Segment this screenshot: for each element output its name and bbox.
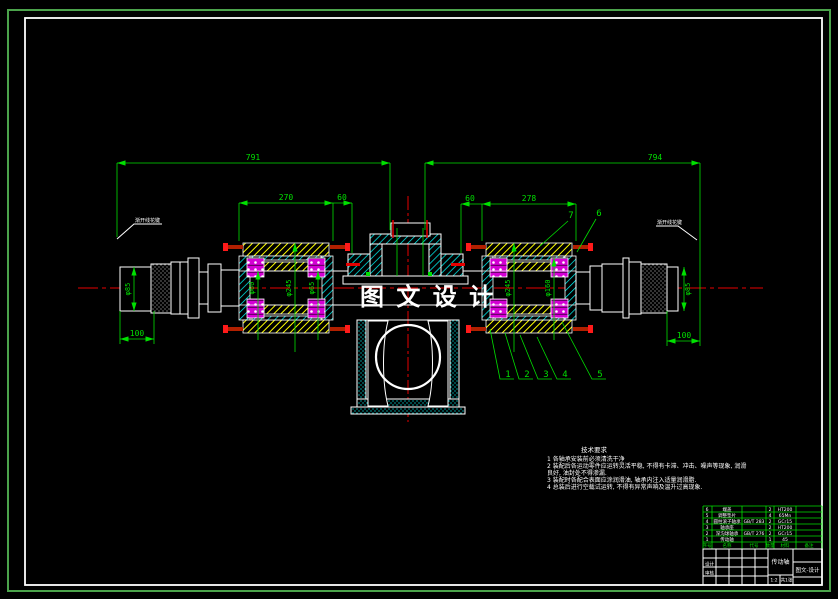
bom-cell: GCr15 (778, 531, 792, 537)
balloon-3: 3 (543, 370, 548, 380)
left-housing-top-band (243, 243, 329, 256)
title-checked-label: 审核 (705, 570, 714, 577)
dim-right-dia-big: φ245 (504, 280, 512, 297)
dim-right-housing: 278 (522, 194, 537, 203)
bom-cell: HT200 (778, 507, 793, 513)
bom-header-cell: 数量 (766, 542, 775, 549)
right-shaft-spline (641, 264, 667, 313)
notes-line-2: 2 装配后各运动零件应运转灵活平稳, 不得有卡滞、冲击、噪声等现象, 润滑 (547, 462, 746, 470)
bom-cell: 4 (769, 513, 772, 519)
right-bearing-tr (551, 258, 568, 277)
bom-cell: 2 (706, 531, 709, 537)
right-shaft (576, 258, 678, 318)
left-shaft-ring1 (171, 262, 180, 314)
bom-cell: GB/T 276 (744, 531, 765, 537)
left-shaft-spline (151, 264, 171, 313)
right-shaft-neck1 (576, 272, 590, 304)
title-company: 图文-设计 (796, 566, 820, 574)
bom-cell: GCr15 (778, 519, 792, 525)
right-shaft-flange (623, 258, 629, 318)
dim-left-end-len: 100 (130, 329, 145, 338)
bom-table: 6 端盖 2 HT200 5 调整垫片 4 65Mn 4 圆柱滚子轴承 GB/T… (703, 506, 823, 549)
cad-drawing-sheet: 791 794 270 60 60 278 100 100 φ85 φ85 φ6… (0, 0, 838, 599)
title-sheet: 共1张 (781, 577, 793, 584)
dim-right-end-len: 100 (677, 331, 692, 340)
bom-cell: 圆柱滚子轴承 (714, 518, 741, 525)
left-mid-band-bottom (264, 305, 308, 314)
bom-header: 序号 名称 代号 数量 材料 备注 (703, 542, 814, 549)
right-housing-top-band (486, 243, 572, 256)
title-part-name: 传动轴 (771, 558, 789, 566)
left-shaft-step (208, 264, 221, 312)
dim-span-right: 794 (648, 153, 663, 162)
front-view-wall-r (450, 320, 459, 408)
left-bearing-tr (308, 258, 325, 277)
right-shaft-step1 (590, 266, 602, 310)
left-shaft-neck (199, 272, 208, 304)
bom-cell: 4 (706, 519, 709, 525)
dim-left-gap: 60 (337, 193, 347, 202)
weld-mark-l (366, 272, 370, 276)
bom-cell: 深沟球轴承 (716, 530, 739, 537)
leader-note-left-line (117, 224, 162, 239)
leader-note-right-line (656, 226, 697, 240)
left-bearing-tl (247, 258, 264, 277)
left-housing-bottom-band (243, 320, 329, 333)
left-bearing-bl (247, 299, 264, 318)
bom-cell: 2 (769, 525, 772, 531)
left-mid-band-top (264, 262, 308, 271)
left-shaft-cyl (221, 270, 239, 306)
right-bearing-br (551, 299, 568, 318)
front-view-wall-l (357, 320, 366, 408)
front-view-base (351, 407, 465, 414)
right-shaft-cyl (602, 264, 623, 312)
notes-line-3: 3 装配时各配合表面应涂润滑油, 轴承内注入适量润滑脂. (547, 476, 697, 484)
bom-cell: 5 (706, 513, 709, 519)
right-shaft-ring (629, 262, 641, 314)
bom-header-cell: 序号 (703, 542, 712, 549)
dim-left-dia-mid: φ65 (308, 282, 316, 295)
left-shaft-flange (188, 258, 199, 318)
watermark-text: 图 文 设 计 (360, 283, 495, 311)
bom-cell: 3 (706, 525, 709, 531)
dim-left-dia-small: φ60 (248, 282, 256, 295)
balloon-1: 1 (505, 370, 510, 380)
balloon-7: 7 (568, 211, 573, 221)
bom-rows: 6 端盖 2 HT200 5 调整垫片 4 65Mn 4 圆柱滚子轴承 GB/T… (706, 506, 793, 543)
dim-left-end-dia: φ85 (124, 283, 132, 296)
leader-note-left-text: 渐开线花键 (135, 217, 160, 224)
bom-cell: 6 (706, 507, 709, 513)
bom-cell: 轴承座 (720, 524, 734, 531)
balloon-5: 5 (597, 370, 602, 380)
notes-line-1: 1 各轴承安装前必须清洗干净 (547, 455, 625, 463)
bom-header-cell: 材料 (781, 542, 790, 549)
bell-foot-bolt-r (451, 263, 465, 266)
title-scale: 1:2 (770, 578, 777, 584)
tech-notes: 技术要求 1 各轴承安装前必须清洗干净 2 装配后各运动零件应运转灵活平稳, 不… (547, 445, 746, 491)
dim-right-end-dia: φ85 (684, 283, 692, 296)
balloon-2: 2 (524, 370, 529, 380)
bom-cell: 传动轴 (720, 536, 734, 543)
bom-cell: 端盖 (723, 506, 732, 513)
dim-span-left: 791 (246, 153, 261, 162)
right-bearing-tl (490, 258, 507, 277)
notes-line-2b: 良好, 油封处不得渗漏. (547, 469, 607, 477)
dim-left-dia-big: φ245 (285, 280, 293, 297)
bom-cell: 2 (769, 507, 772, 513)
weld-mark-r (428, 272, 432, 276)
bom-cell: 调整垫片 (718, 512, 736, 519)
bom-cell: 2 (769, 531, 772, 537)
title-block: 设计 审核 传动轴 1:2 共1张 图文-设计 (703, 549, 822, 585)
bom-header-cell: 代号 (750, 542, 759, 549)
title-drawn-label: 设计 (705, 561, 714, 568)
leader-note-right-text: 渐开线花键 (657, 219, 682, 226)
bom-header-cell: 备注 (805, 542, 814, 549)
bom-cell: 1 (706, 537, 709, 543)
left-shaft (120, 258, 239, 318)
bell-foot-bolt-l (346, 263, 360, 266)
left-bearing-br (308, 299, 325, 318)
dim-right-dia-mid: φ160 (544, 280, 552, 297)
balloon-4: 4 (562, 370, 567, 380)
bom-header-cell: 名称 (723, 542, 732, 549)
cad-canvas: 791 794 270 60 60 278 100 100 φ85 φ85 φ6… (0, 0, 838, 599)
right-housing-bottom-band (486, 320, 572, 333)
bom-cell: 2 (769, 519, 772, 525)
bom-cell: GB/T 283 (744, 519, 765, 525)
bom-cell: 45 (782, 537, 788, 543)
left-shaft-ring2 (180, 262, 188, 314)
dim-left-housing: 270 (279, 193, 294, 202)
title-block-grid (703, 549, 822, 585)
bom-cell: 65Mn (779, 513, 792, 519)
bom-cell: 1 (769, 537, 772, 543)
right-shaft-end-cap (667, 267, 678, 311)
notes-title: 技术要求 (581, 445, 608, 454)
bom-cell: HT200 (778, 525, 793, 531)
balloon-6: 6 (596, 209, 601, 219)
dim-right-gap: 60 (465, 194, 475, 203)
notes-line-4: 4 总装后进行空载试运转, 不得有异常声响及温升过高现象. (547, 483, 703, 491)
